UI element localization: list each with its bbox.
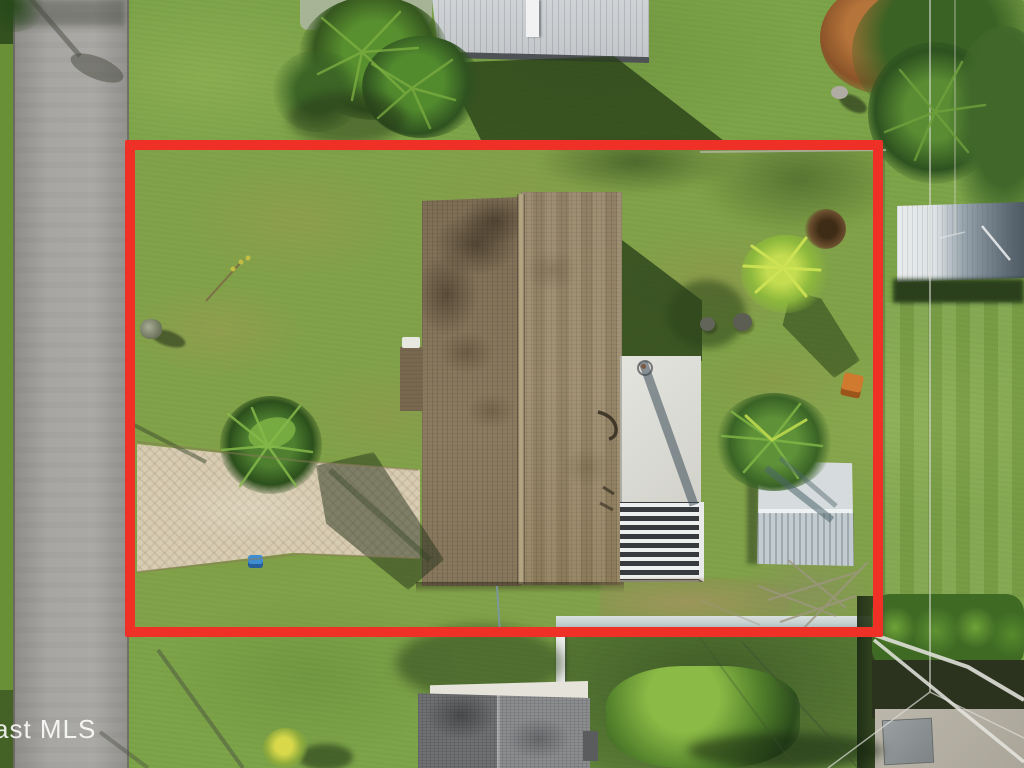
road-verge <box>0 0 14 768</box>
chimney-vent <box>526 0 539 37</box>
deep-shadow <box>688 733 883 768</box>
mowed-lawn <box>886 302 1024 598</box>
aerial-photo: ast MLS <box>0 0 1024 768</box>
street <box>13 0 129 768</box>
yellow-plant <box>263 728 309 768</box>
palm-shadow <box>288 92 406 144</box>
utility-box <box>882 718 934 766</box>
birdbath <box>831 86 848 99</box>
hedge-row <box>872 594 1024 668</box>
ac-unit <box>583 731 598 761</box>
neighbor-house-right <box>897 202 1024 282</box>
mls-watermark: ast MLS <box>0 714 96 745</box>
building-shadow <box>893 279 1024 303</box>
property-boundary-outline <box>125 140 883 637</box>
neighbor-house-bottom-roof <box>418 690 590 768</box>
